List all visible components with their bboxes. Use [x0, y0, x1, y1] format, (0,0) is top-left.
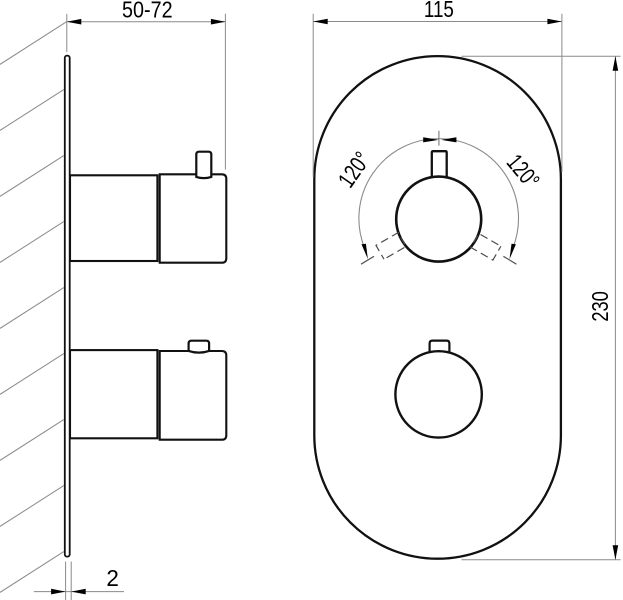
- svg-text:115: 115: [424, 0, 454, 22]
- svg-text:50-72: 50-72: [122, 0, 173, 22]
- svg-text:230: 230: [587, 291, 613, 322]
- svg-text:2: 2: [106, 565, 119, 591]
